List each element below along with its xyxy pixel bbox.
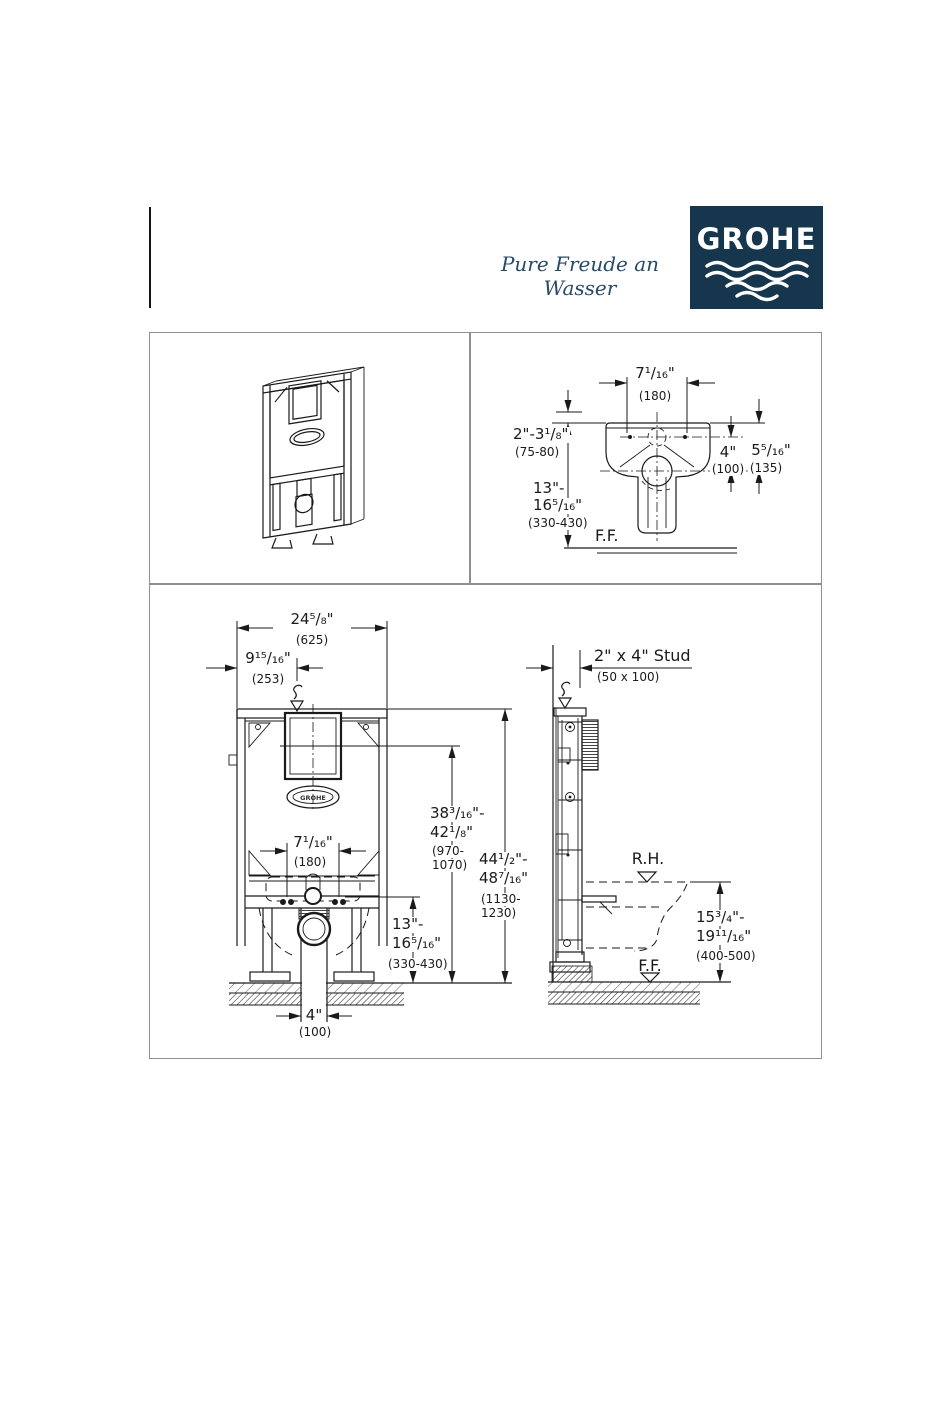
dim-rim-h-l2: 19¹¹/₁₆" xyxy=(694,929,753,945)
cistern-top-outline xyxy=(606,423,710,533)
dim-offset-in: 4" xyxy=(718,445,738,461)
dim-bolt-spacing-mm: (180) xyxy=(292,856,328,869)
dim-frame-h-m2: 1230) xyxy=(479,907,518,920)
side-floor-hatch xyxy=(548,982,700,992)
dim-supply-offset-in: 9¹⁵/₁₆" xyxy=(243,651,293,667)
dim-actuator-m2: 1070) xyxy=(430,859,469,872)
dim-frame-h-l1: 44¹/₂"- xyxy=(477,852,529,868)
grohe-logo: GROHE xyxy=(690,206,823,309)
flush-housing xyxy=(582,720,598,770)
dim-wall-mm: (75-80) xyxy=(515,446,559,459)
dim-outlet-h-l1: 13"- xyxy=(390,917,425,933)
dim-supply-h-l2: 16⁵/₁₆" xyxy=(531,498,584,514)
rim-height-label: R.H. xyxy=(632,851,664,868)
water-supply-icon xyxy=(294,685,302,699)
dim-bolt-spacing-in: 7¹/₁₆" xyxy=(291,835,335,851)
rim-height-marker xyxy=(638,872,656,882)
spec-sheet-page: Pure Freude an Wasser GROHE xyxy=(0,0,950,1420)
stud-label: 2" x 4" Stud xyxy=(592,648,693,665)
dim-rim-mm: (135) xyxy=(748,462,784,475)
grohe-waves-icon xyxy=(690,258,823,304)
page-margin-mark xyxy=(149,207,151,308)
dim-supply-h-l1: 13"- xyxy=(531,481,566,497)
dim-rim-h-mm: (400-500) xyxy=(694,950,758,963)
dim-rim-in: 5⁵/₁₆" xyxy=(749,443,793,459)
dim-outlet-h-l2: 16⁵/₁₆" xyxy=(390,936,443,952)
water-supply-icon xyxy=(562,682,570,696)
dim-wall-in: 2"-3¹/₈" xyxy=(511,427,570,443)
dim-supply-h-mm: (330-430) xyxy=(526,517,590,530)
dim-cc-mm: (180) xyxy=(639,390,671,403)
dim-actuator-m1: (970- xyxy=(430,845,466,858)
dim-frame-h-m1: (1130- xyxy=(479,893,523,906)
grohe-logo-text: GROHE xyxy=(690,222,823,256)
dim-outlet-w-in: 4" xyxy=(304,1008,324,1024)
isometric-frame-drawing xyxy=(150,333,468,581)
toilet-bowl-outline xyxy=(586,882,688,951)
svg-text:GROHE: GROHE xyxy=(300,794,326,802)
top-view-ff-label: F.F. xyxy=(595,528,618,545)
dim-width-mm: (625) xyxy=(296,634,328,647)
side-ff-label: F.F. xyxy=(638,958,661,975)
dim-width-in: 24⁵/₈" xyxy=(288,612,335,628)
dim-frame-h-l2: 48⁷/₁₆" xyxy=(477,871,530,887)
dim-actuator-l2: 42¹/₈" xyxy=(428,825,475,841)
brand-tagline: Pure Freude an Wasser xyxy=(482,252,678,300)
dim-actuator-l1: 38³/₁₆"- xyxy=(428,806,487,822)
dim-cc-in: 7¹/₁₆" xyxy=(633,366,677,382)
dim-outlet-w-mm: (100) xyxy=(299,1026,331,1039)
stud-mm: (50 x 100) xyxy=(597,671,659,684)
dim-rim-h-l1: 15³/₄"- xyxy=(694,910,746,926)
dim-offset-mm: (100) xyxy=(710,463,746,476)
dim-outlet-h-mm: (330-430) xyxy=(386,958,450,971)
dim-supply-offset-mm: (253) xyxy=(252,673,284,686)
